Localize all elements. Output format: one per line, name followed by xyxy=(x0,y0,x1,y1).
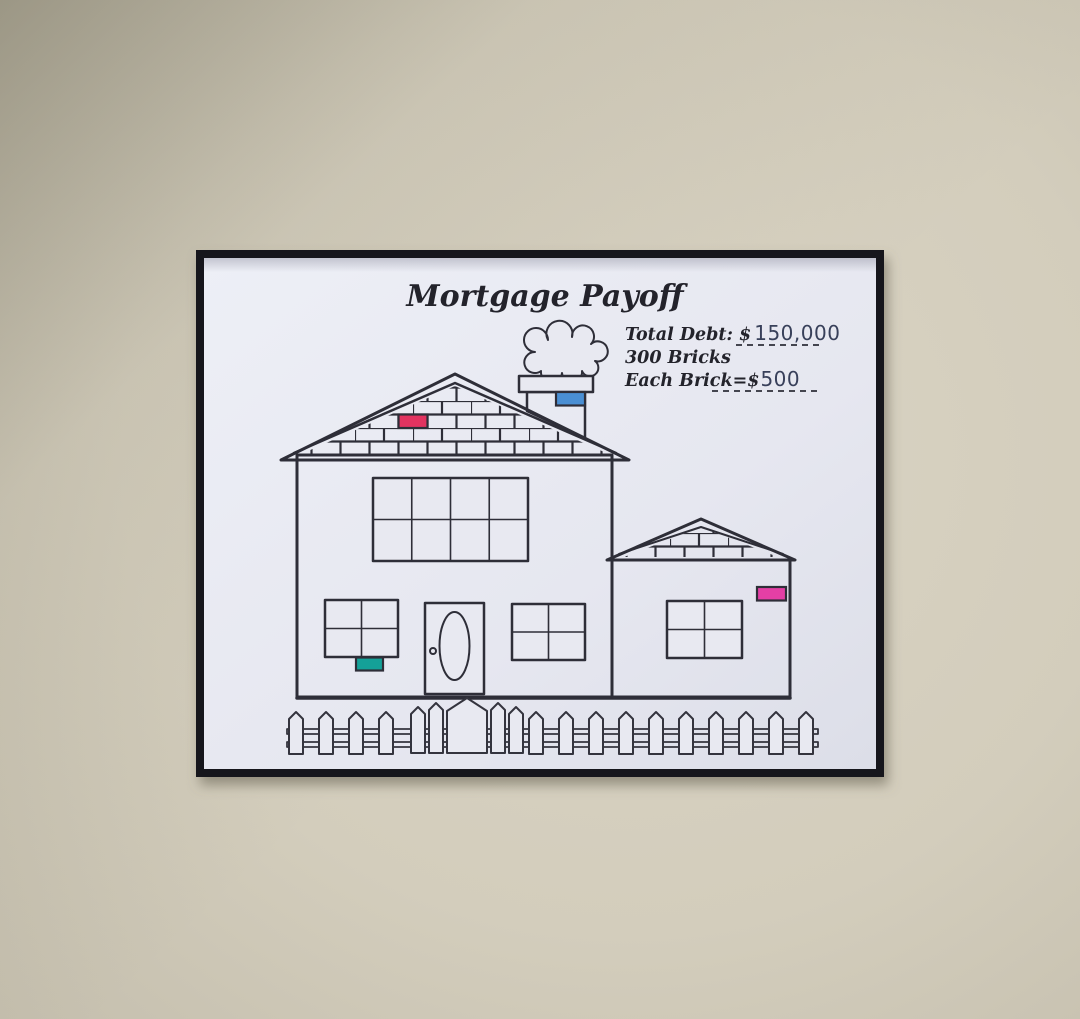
photo-of-framed-mortgage-payoff-chart: Mortgage Payoff Total Debt: $150,000 300… xyxy=(0,0,1080,1019)
fence-picket xyxy=(739,712,753,754)
paper-top-shadow xyxy=(204,258,876,272)
each-brick-line: Each Brick=$500 xyxy=(624,367,800,391)
extension-window xyxy=(667,601,742,658)
chimney-cap xyxy=(519,376,593,392)
fence-picket xyxy=(709,712,723,754)
fence-picket xyxy=(619,712,633,754)
lower-left-window xyxy=(325,600,398,657)
bricks-count-line: 300 Bricks xyxy=(625,348,731,368)
each-brick-label: Each Brick=$ xyxy=(624,371,759,391)
total-debt-line: Total Debt: $150,000 xyxy=(625,321,840,345)
fence-picket xyxy=(799,712,813,754)
picture-frame-group: Mortgage Payoff Total Debt: $150,000 300… xyxy=(196,250,884,777)
fence-picket xyxy=(769,712,783,754)
fence-picket xyxy=(529,712,543,754)
poster-title: Mortgage Payoff xyxy=(405,279,688,314)
fence-picket xyxy=(289,712,303,754)
fence-picket xyxy=(319,712,333,754)
total-debt-label: Total Debt: $ xyxy=(625,325,751,345)
gable-pink-brick xyxy=(399,415,428,429)
extension-pink-brick xyxy=(757,587,786,601)
fence-gate-picket xyxy=(411,707,425,753)
fence-picket xyxy=(589,712,603,754)
total-debt-handwritten-value: 150,000 xyxy=(754,321,840,345)
fence-picket xyxy=(649,712,663,754)
fence-picket xyxy=(559,712,573,754)
upper-window xyxy=(373,478,528,561)
window-teal-brick xyxy=(356,658,383,671)
fence-picket xyxy=(679,712,693,754)
fence-gate-picket xyxy=(491,703,505,753)
front-door xyxy=(425,603,484,694)
fence-picket xyxy=(349,712,363,754)
each-brick-handwritten-value: 500 xyxy=(760,367,800,391)
fence-gate-picket xyxy=(447,698,487,753)
fence-picket xyxy=(379,712,393,754)
lower-right-window xyxy=(512,604,585,660)
chimney-blue-brick xyxy=(556,392,585,406)
fence-gate-picket xyxy=(509,707,523,753)
door-knob xyxy=(430,648,436,654)
fence-gate-picket xyxy=(429,703,443,753)
